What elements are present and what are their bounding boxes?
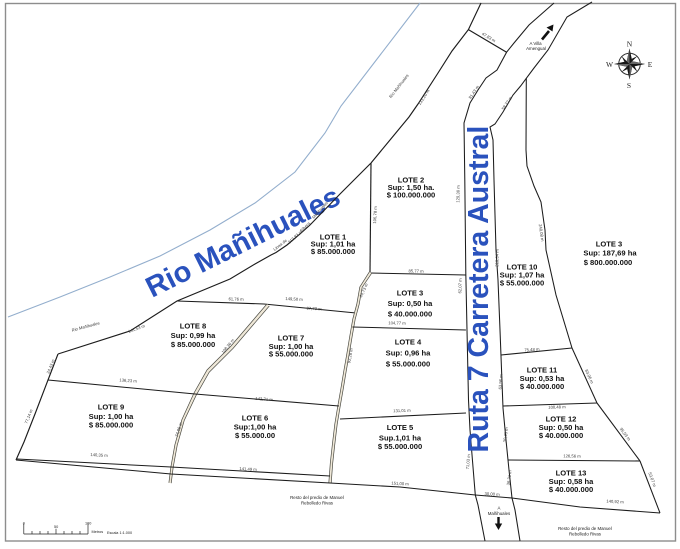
svg-text:$ 55.000.000: $ 55.000.000 <box>500 279 544 288</box>
svg-text:A: A <box>498 506 501 511</box>
svg-text:$ 800.000.000: $ 800.000.000 <box>584 258 633 267</box>
svg-text:$ 40.000.000: $ 40.000.000 <box>520 382 564 391</box>
svg-text:104,77 m: 104,77 m <box>388 320 406 325</box>
svg-text:E: E <box>648 60 653 69</box>
svg-text:140,92 m: 140,92 m <box>606 499 624 505</box>
svg-text:85,77 m: 85,77 m <box>408 268 424 273</box>
svg-text:$ 100.000.000: $ 100.000.000 <box>387 191 436 200</box>
svg-text:Resto del predio de Manuel: Resto del predio de Manuel <box>558 526 612 531</box>
svg-text:Escala 1:1.000: Escala 1:1.000 <box>107 531 132 535</box>
svg-text:Sup: 0,50 ha: Sup: 0,50 ha <box>388 299 434 308</box>
svg-text:0: 0 <box>23 522 25 526</box>
svg-text:LOTE 8: LOTE 8 <box>180 322 207 331</box>
svg-text:Sup: 187,69 ha: Sup: 187,69 ha <box>583 249 637 258</box>
svg-text:106,78 m: 106,78 m <box>372 206 378 224</box>
svg-text:Mañihuales: Mañihuales <box>488 511 511 516</box>
svg-text:100: 100 <box>85 522 91 526</box>
svg-text:141,49 m: 141,49 m <box>239 466 257 472</box>
svg-text:Metros: Metros <box>92 530 104 534</box>
svg-text:Resto del predio de Manuel: Resto del predio de Manuel <box>290 495 344 500</box>
svg-text:151,00 m: 151,00 m <box>391 481 409 487</box>
svg-text:50: 50 <box>54 525 58 529</box>
svg-text:$ 40.000.000: $ 40.000.000 <box>388 310 432 319</box>
svg-text:131,01 m: 131,01 m <box>393 408 411 414</box>
svg-text:LOTE 4: LOTE 4 <box>395 338 422 347</box>
svg-text:$ 85.000.000: $ 85.000.000 <box>311 247 355 256</box>
svg-text:213,34 m: 213,34 m <box>494 249 500 267</box>
svg-text:$ 55.000.00: $ 55.000.00 <box>235 431 275 440</box>
svg-text:LOTE 6: LOTE 6 <box>242 414 269 423</box>
svg-text:$ 85.000.000: $ 85.000.000 <box>171 340 215 349</box>
svg-text:149,50 m: 149,50 m <box>285 296 303 302</box>
svg-text:S: S <box>627 81 631 90</box>
svg-text:LOTE 5: LOTE 5 <box>387 423 414 432</box>
svg-text:N: N <box>627 40 633 49</box>
svg-text:30,00 m: 30,00 m <box>484 491 500 497</box>
svg-text:Ruta 7 Carretera Austral: Ruta 7 Carretera Austral <box>463 126 495 453</box>
svg-text:Rebolledo Rivas: Rebolledo Rivas <box>569 532 602 537</box>
svg-text:Sup: 1,00 ha: Sup: 1,00 ha <box>89 412 135 421</box>
svg-text:Rebolledo Rivas: Rebolledo Rivas <box>301 501 334 506</box>
svg-text:140,35 m: 140,35 m <box>90 452 108 458</box>
svg-text:100,48 m: 100,48 m <box>548 404 566 410</box>
svg-text:Amengual: Amengual <box>526 46 546 51</box>
svg-text:$ 40.000.000: $ 40.000.000 <box>539 431 583 440</box>
svg-text:LOTE 3: LOTE 3 <box>596 240 623 249</box>
svg-text:$ 85.000.000: $ 85.000.000 <box>89 421 133 430</box>
svg-text:LOTE 9: LOTE 9 <box>98 403 125 412</box>
svg-text:Sup: 0,96 ha: Sup: 0,96 ha <box>386 349 432 358</box>
svg-text:LOTE 3: LOTE 3 <box>397 289 424 298</box>
svg-text:$ 55.000.000: $ 55.000.000 <box>386 360 430 369</box>
svg-text:126,56 m: 126,56 m <box>563 453 581 458</box>
svg-text:61,76 m: 61,76 m <box>228 296 244 302</box>
svg-text:129,30 m: 129,30 m <box>455 185 461 203</box>
svg-text:62,07 m: 62,07 m <box>457 278 463 294</box>
svg-text:97,73 m: 97,73 m <box>306 306 322 312</box>
svg-text:Sup: 0,99 ha: Sup: 0,99 ha <box>171 331 217 340</box>
svg-text:$ 40.000.000: $ 40.000.000 <box>549 485 593 494</box>
svg-text:W: W <box>606 60 614 69</box>
svg-text:$ 55.000.000: $ 55.000.000 <box>378 442 422 451</box>
svg-text:$ 55.000.000: $ 55.000.000 <box>269 350 313 359</box>
